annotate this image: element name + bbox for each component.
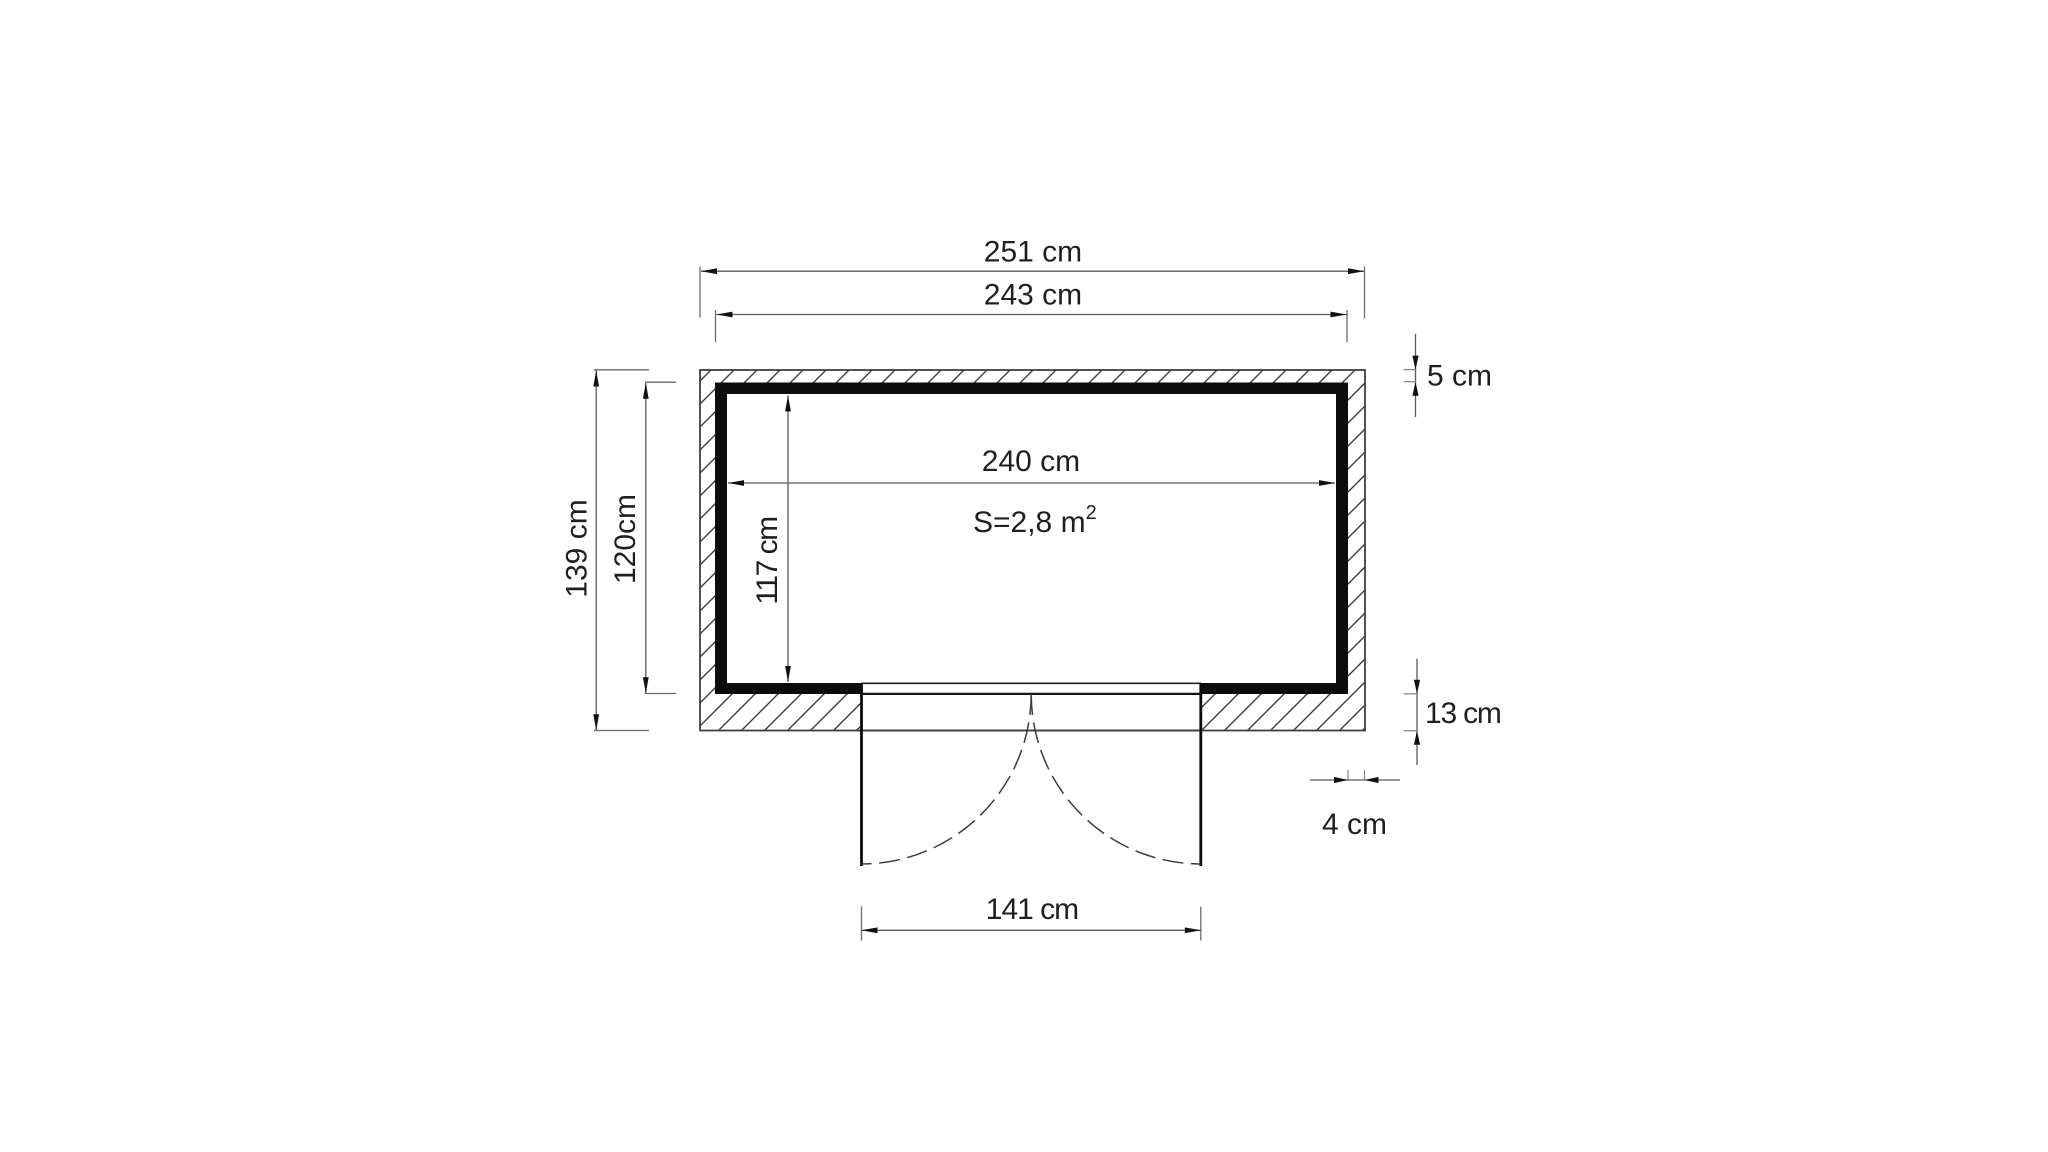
svg-text:240 cm: 240 cm [982,445,1080,478]
svg-text:5 cm: 5 cm [1427,360,1492,393]
svg-text:251 cm: 251 cm [984,236,1082,269]
svg-text:117 cm: 117 cm [751,517,784,605]
svg-text:139 cm: 139 cm [561,499,594,597]
svg-text:243 cm: 243 cm [984,279,1082,312]
svg-text:13 cm: 13 cm [1425,697,1501,730]
svg-text:S=2,8 m2: S=2,8 m2 [973,502,1097,539]
svg-text:120cm: 120cm [609,494,642,584]
svg-text:141 cm: 141 cm [986,893,1078,926]
svg-text:4 cm: 4 cm [1322,808,1387,841]
